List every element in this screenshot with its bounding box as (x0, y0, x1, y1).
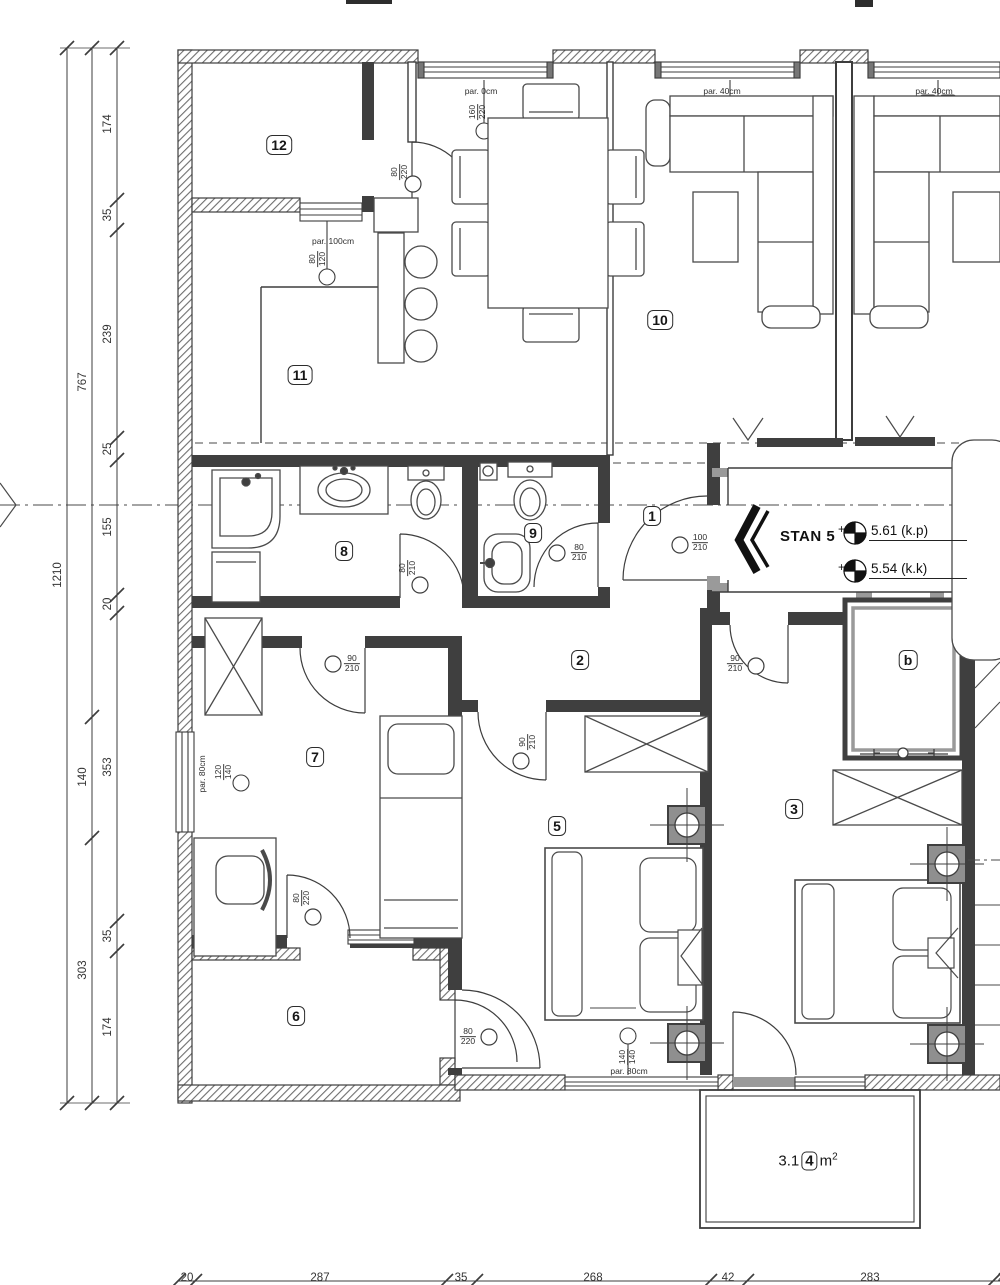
door-tag: 80210 (398, 560, 418, 576)
kitchen-bar (374, 198, 437, 363)
window-tag: 80120 (308, 251, 328, 267)
apartment-name: STAN 5 (780, 528, 835, 545)
dim-bottom: 42 (722, 1272, 735, 1284)
parapet-note: par. 80cm (197, 755, 207, 792)
parapet-note: par. 40cm (703, 86, 740, 96)
dim-bottom: 287 (310, 1272, 329, 1284)
room-label-6: 6 (287, 1006, 305, 1026)
dim-left-mid: 140 (77, 767, 89, 786)
room-label-7: 7 (306, 747, 324, 767)
dim-left: 155 (102, 517, 114, 536)
dim-left-mid: 303 (77, 960, 89, 979)
dim-left: 174 (102, 114, 114, 133)
level-kp: +5.61 (k.p) (838, 522, 967, 541)
dim-bottom: 283 (860, 1272, 879, 1284)
door-tag: 80210 (571, 543, 587, 563)
dim-left: 35 (102, 930, 114, 943)
dim-left: 239 (102, 324, 114, 343)
parapet-note: par. 80cm (610, 1066, 647, 1076)
room-label-8: 8 (335, 541, 353, 561)
elevator (845, 600, 962, 758)
tv-right-unit (855, 416, 935, 446)
dim-left: 20 (102, 598, 114, 611)
dim-bottom: 20 (181, 1272, 194, 1284)
door-tag: 90210 (727, 654, 743, 674)
room-label-1: 1 (643, 506, 661, 526)
door-tag: 80220 (390, 164, 410, 180)
room-label-b: b (899, 650, 918, 670)
dim-bottom: 268 (583, 1272, 602, 1284)
parapet-note: par. 100cm (312, 236, 354, 246)
entry-arrow (739, 506, 768, 572)
parapet-note: par. 0cm (465, 86, 498, 96)
door-tag: 90210 (518, 734, 538, 750)
door-tag: 90210 (344, 654, 360, 674)
room7-furniture (194, 716, 462, 956)
dim-left: 35 (102, 209, 114, 222)
balcony-area-label: 3.14m2 (778, 1152, 837, 1171)
window-tag: 160220 (468, 104, 488, 120)
tv-left-unit (733, 418, 843, 447)
dim-left: 25 (102, 443, 114, 456)
window-tag: 120140 (214, 764, 234, 780)
sofa-left-unit (646, 96, 833, 328)
dim-left: 353 (102, 757, 114, 776)
room3-bed (795, 880, 960, 1023)
floorplan-page: 12 11 10 8 9 1 2 7 5 3 6 b 80220 160220 … (0, 0, 1000, 1285)
room-label-11: 11 (288, 365, 313, 385)
room-label-10: 10 (647, 310, 673, 330)
room-label-12: 12 (266, 135, 292, 155)
room5-bed (545, 848, 703, 1020)
room-label-2: 2 (571, 650, 589, 670)
floorplan-drawing-canvas (0, 0, 1000, 1285)
edge-marks (346, 0, 873, 7)
room-label-3: 3 (785, 799, 803, 819)
dim-left-mid: 767 (77, 372, 89, 391)
dining-set (452, 84, 644, 342)
room-label-5: 5 (548, 816, 566, 836)
parapet-note: par. 40cm (915, 86, 952, 96)
door-tag: 80220 (460, 1027, 476, 1047)
dim-left: 174 (102, 1017, 114, 1036)
room-label-4: 4 (801, 1152, 817, 1171)
door-tag: 80220 (292, 890, 312, 906)
door-tag: 100210 (692, 533, 708, 553)
dim-bottom: 35 (455, 1272, 468, 1284)
room-label-9: 9 (524, 523, 542, 543)
level-kk: +5.54 (k.k) (838, 560, 967, 579)
window-tag: 140140 (618, 1049, 638, 1065)
dim-left-outer: 1210 (52, 562, 64, 588)
